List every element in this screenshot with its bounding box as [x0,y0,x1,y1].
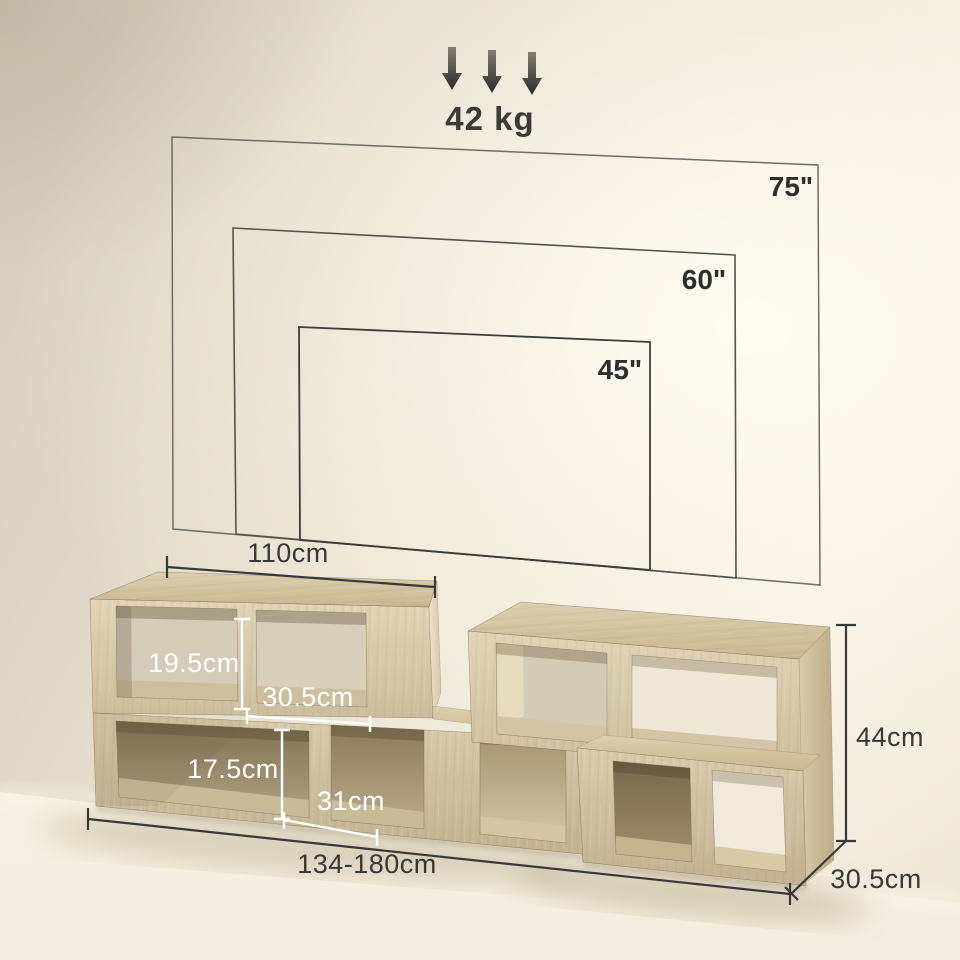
dim-label-depth: 30.5cm [830,864,922,894]
down-arrow-icon [442,47,462,90]
load-capacity: 42 kg [442,47,542,137]
down-arrow-icon [522,52,542,95]
dim-label-lower-compartment-width: 31cm [317,786,385,816]
tv-size-label-45: 45" [598,354,642,385]
dim-label-total-width: 134-180cm [297,849,437,879]
dim-label-upper-compartment-width: 30.5cm [262,682,354,712]
tv-size-label-75: 75" [769,171,813,202]
down-arrow-icon [482,50,502,93]
tv-size-outlines: 75" 60" 45" [172,137,820,585]
dim-label-upper-compartment-height: 19.5cm [148,648,240,678]
dim-line-total-height [836,625,856,841]
tv-stand-scene: 75" 60" 45" 42 kg [0,0,960,960]
tv-size-label-60: 60" [682,264,726,295]
product-dimension-diagram: 75" 60" 45" 42 kg [0,0,960,960]
weight-capacity-label: 42 kg [445,100,534,137]
tv-outline-75 [172,137,820,585]
tv-outline-60 [233,228,736,578]
dim-label-total-height: 44cm [856,722,924,752]
dim-label-lower-compartment-height: 17.5cm [187,754,279,784]
dim-label-top-width: 110cm [247,538,329,568]
